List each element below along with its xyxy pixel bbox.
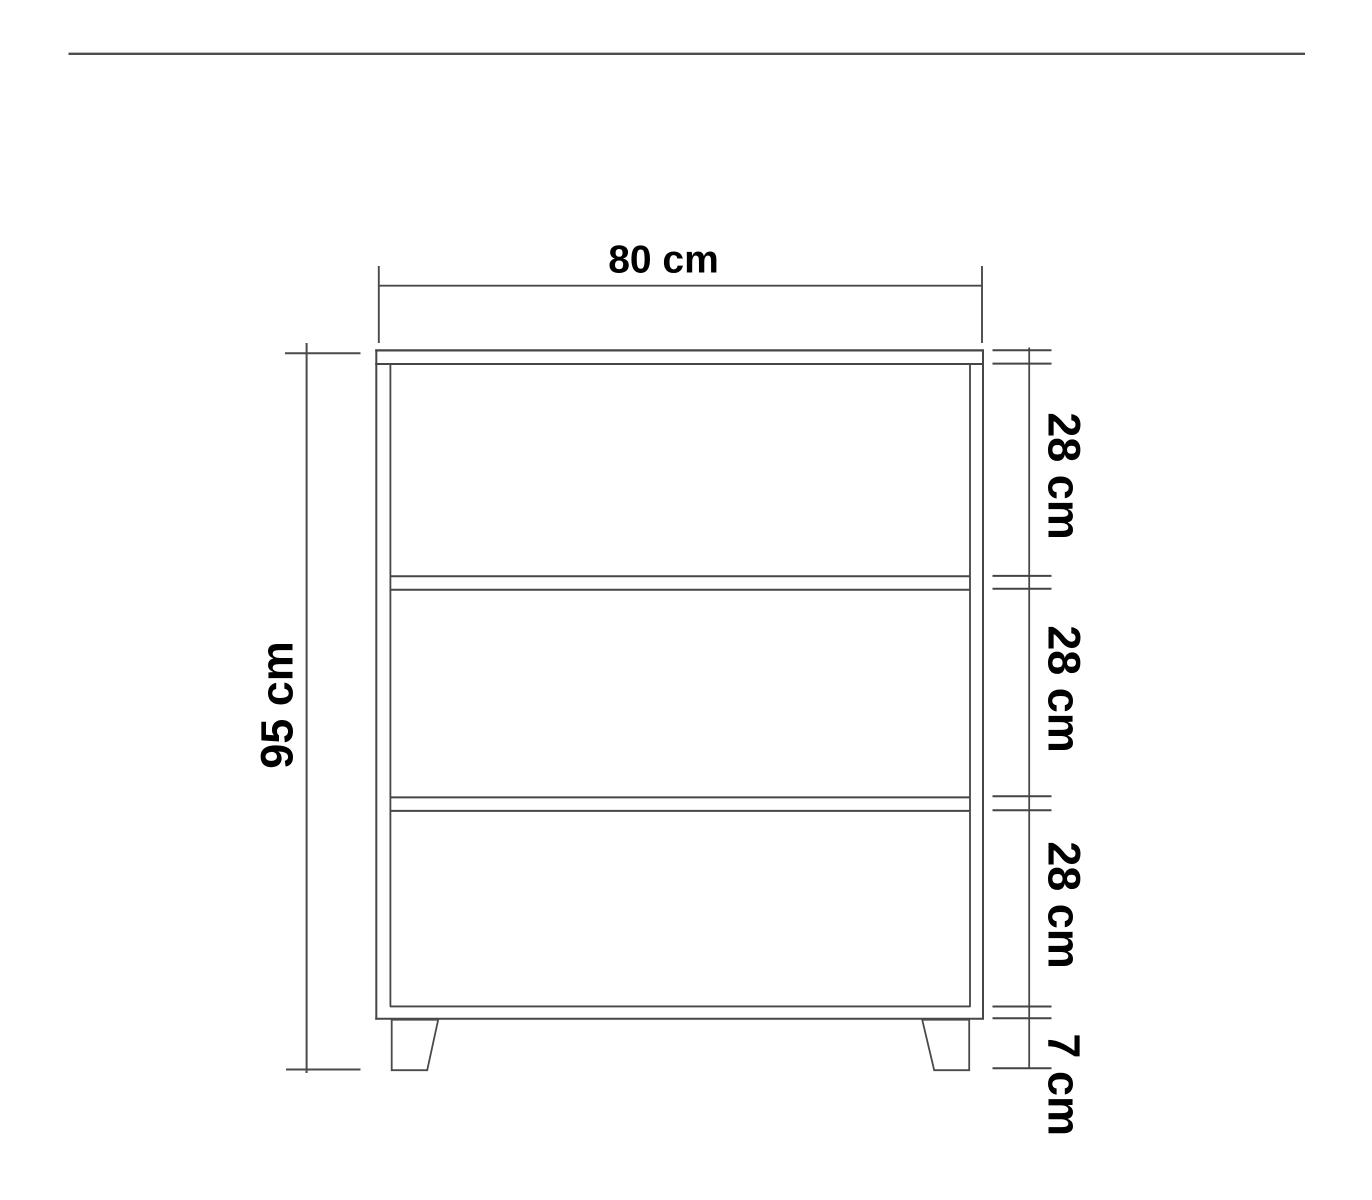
svg-text:28 cm: 28 cm — [1039, 412, 1090, 540]
svg-text:28 cm: 28 cm — [1039, 841, 1090, 969]
svg-text:80 cm: 80 cm — [608, 239, 719, 282]
svg-text:95 cm: 95 cm — [252, 641, 303, 769]
svg-text:7 cm: 7 cm — [1039, 1033, 1090, 1136]
svg-text:28 cm: 28 cm — [1039, 625, 1090, 753]
